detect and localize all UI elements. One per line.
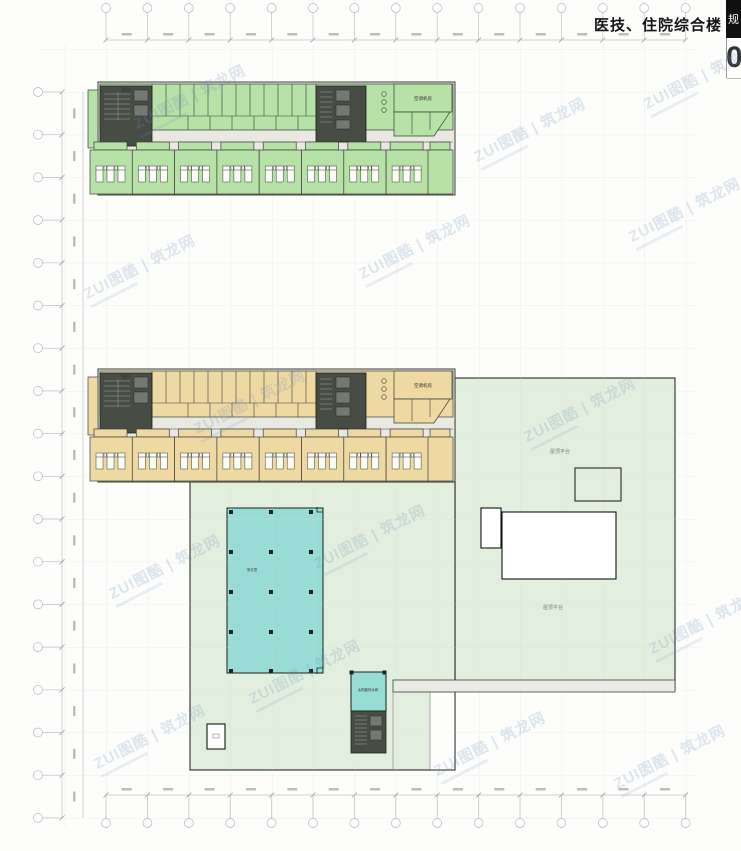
titleblock-top-char: 规 bbox=[728, 11, 739, 27]
walkway-band bbox=[393, 680, 675, 692]
roof-terrace-upper-label: 屋顶平台 bbox=[550, 448, 570, 455]
east-end-room bbox=[428, 150, 453, 194]
drawing-sheet: 屋顶平台 屋顶平台 采光顶 太阳能热水间 阳台 空 bbox=[0, 0, 741, 851]
west-balcony bbox=[88, 377, 98, 435]
roof-shed bbox=[207, 724, 225, 749]
drawing-title: 医技、住院综合楼 bbox=[594, 14, 722, 35]
floor-plan-sheet: 屋顶平台 屋顶平台 采光顶 太阳能热水间 阳台 空 bbox=[0, 0, 741, 851]
ac-room-label: 空调机房 bbox=[414, 382, 432, 389]
roof-opening-small bbox=[481, 508, 501, 548]
balcony-label: 阳台 bbox=[122, 86, 131, 93]
solar-room-label: 太阳能热水间 bbox=[358, 687, 379, 692]
east-end-room bbox=[428, 437, 453, 481]
skylight-label: 采光顶 bbox=[247, 567, 258, 572]
titleblock-bar: 规 bbox=[726, 0, 741, 38]
floor-plan-lower: 阳台 空调机房 bbox=[88, 369, 455, 482]
ac-room-label: 空调机房 bbox=[414, 95, 432, 102]
titleblock-number: 0 bbox=[726, 40, 741, 76]
titleblock-rule bbox=[727, 78, 741, 79]
balcony-label: 阳台 bbox=[122, 373, 131, 380]
west-balcony bbox=[88, 90, 98, 148]
roof-cutout bbox=[431, 693, 455, 770]
roof-terrace-lower-label: 屋顶平台 bbox=[543, 604, 563, 611]
floor-plan-upper: 阳台 空调机房 bbox=[88, 82, 455, 195]
roof-opening-large bbox=[502, 512, 616, 579]
titleblock-border bbox=[726, 38, 727, 78]
